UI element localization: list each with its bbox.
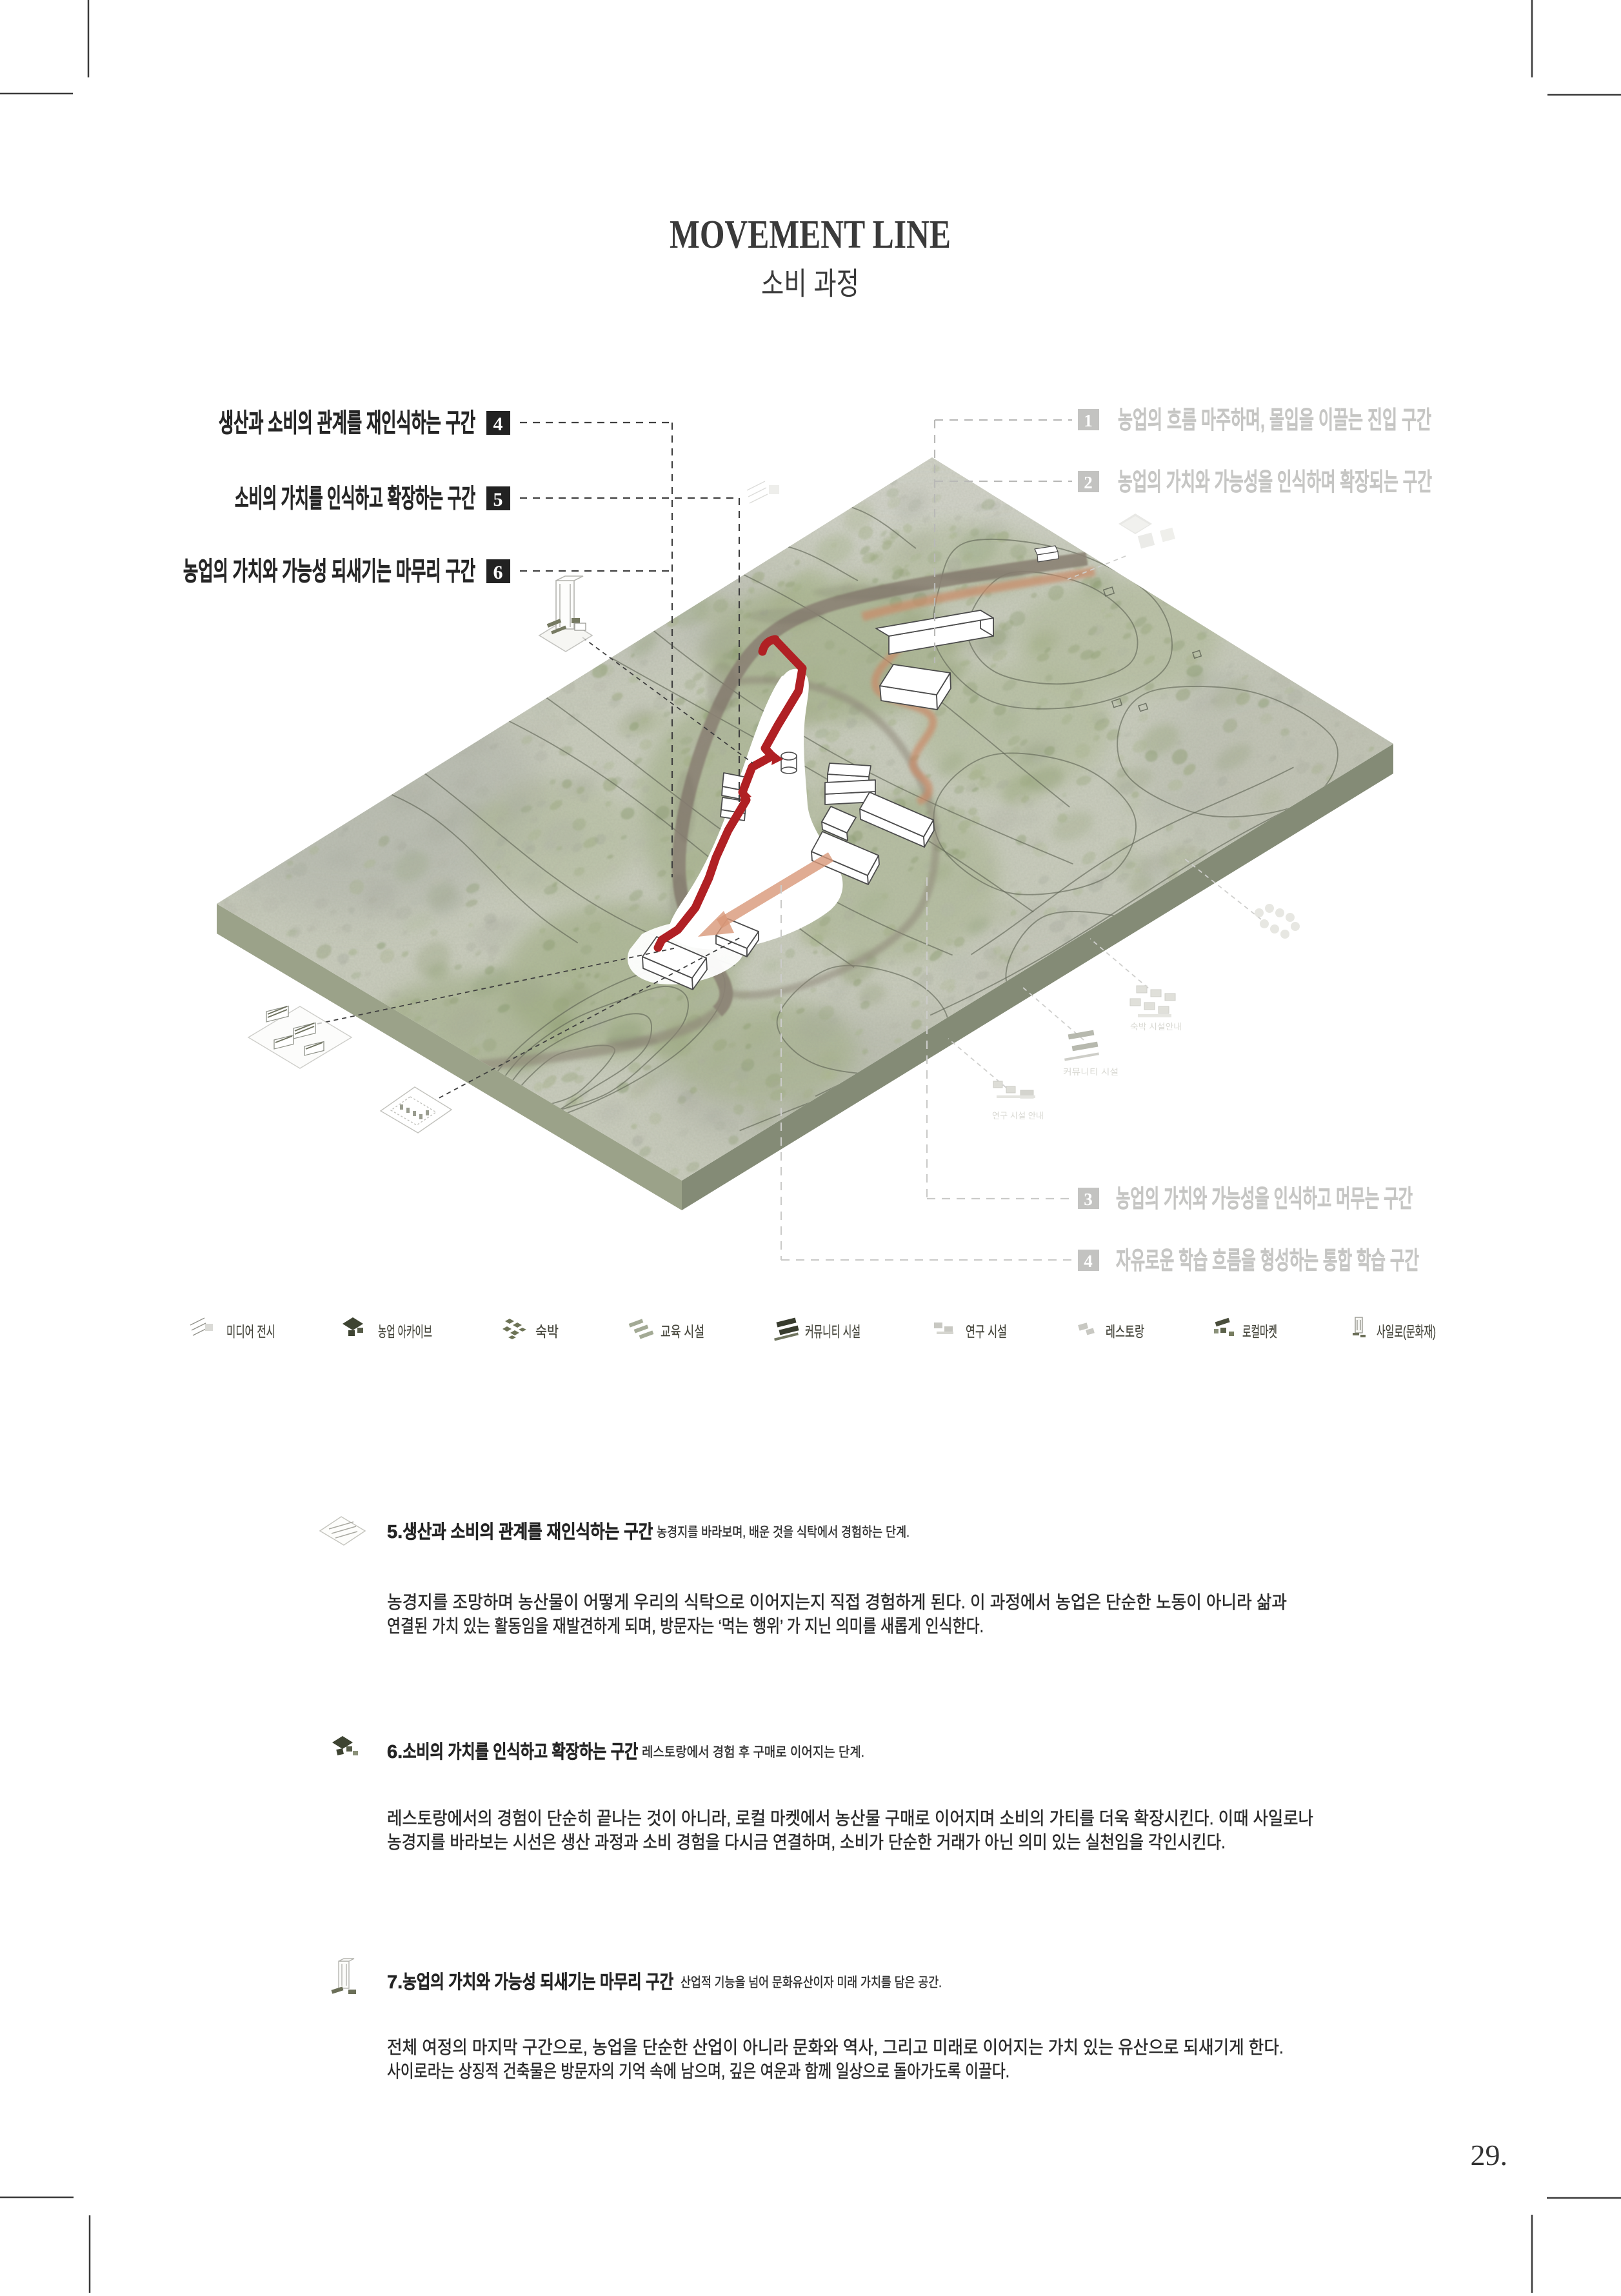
svg-text:소비 과정: 소비 과정 (761, 267, 859, 301)
svg-text:사이로라는 상징적 건축물은 방문자의 기억 속에 남으며,: 사이로라는 상징적 건축물은 방문자의 기억 속에 남으며, 깊은 여운과 함께… (387, 2061, 1009, 2081)
svg-text:숙박: 숙박 (535, 1323, 559, 1340)
svg-text:사일로(문화재): 사일로(문화재) (1377, 1323, 1436, 1340)
svg-text:5: 5 (493, 489, 503, 510)
svg-text:커뮤니티 시설: 커뮤니티 시설 (1063, 1067, 1119, 1077)
svg-text:4: 4 (1084, 1252, 1093, 1271)
svg-text:연구 시설: 연구 시설 (966, 1323, 1007, 1340)
svg-text:레스토랑에서 경험 후 구매로 이어지는 단계.: 레스토랑에서 경험 후 구매로 이어지는 단계. (642, 1745, 864, 1760)
svg-text:MOVEMENT LINE: MOVEMENT LINE (670, 213, 951, 257)
svg-text:농업의 흐름 마주하며, 몰입을 이끌는 진입 구간: 농업의 흐름 마주하며, 몰입을 이끌는 진입 구간 (1118, 407, 1431, 434)
svg-text:레스토랑: 레스토랑 (1106, 1323, 1144, 1340)
svg-text:전체 여정의 마지막 구간으로, 농업을 단순한 산업이 아: 전체 여정의 마지막 구간으로, 농업을 단순한 산업이 아니라 문화와 역사,… (387, 2037, 1284, 2057)
svg-text:7.농업의 가치와 가능성 되새기는 마무리 구간: 7.농업의 가치와 가능성 되새기는 마무리 구간 (387, 1972, 673, 1993)
svg-text:농업 아카이브: 농업 아카이브 (378, 1323, 432, 1340)
svg-text:1: 1 (1084, 411, 1093, 430)
svg-text:4: 4 (493, 414, 503, 435)
svg-text:교육 시설: 교육 시설 (661, 1323, 704, 1340)
svg-text:농업의 가치와 가능성 되새기는 마무리 구간: 농업의 가치와 가능성 되새기는 마무리 구간 (183, 557, 475, 586)
svg-text:레스토랑에서의 경험이 단순히 끝나는 것이 아니라, 로컬: 레스토랑에서의 경험이 단순히 끝나는 것이 아니라, 로컬 마켓에서 농산물 … (387, 1808, 1313, 1828)
svg-text:농경지를 바라보며, 배운 것을 식탁에서 경험하는 단계.: 농경지를 바라보며, 배운 것을 식탁에서 경험하는 단계. (657, 1525, 910, 1540)
svg-text:연결된 가치 있는 활동임을 재발견하게 되며, 방문자는: 연결된 가치 있는 활동임을 재발견하게 되며, 방문자는 ‘먹는 행위’ 가 … (387, 1616, 984, 1636)
svg-text:5.생산과 소비의 관계를 재인식하는 구간: 5.생산과 소비의 관계를 재인식하는 구간 (387, 1521, 653, 1542)
svg-text:자유로운 학습 흐름을 형성하는 통합 학습 구간: 자유로운 학습 흐름을 형성하는 통합 학습 구간 (1116, 1248, 1419, 1275)
svg-text:커뮤니티 시설: 커뮤니티 시설 (805, 1323, 860, 1340)
svg-text:연구 시설 안내: 연구 시설 안내 (992, 1111, 1044, 1121)
svg-text:2: 2 (1084, 473, 1093, 492)
svg-text:농경지를 바라보는 시선은 생산 과정과 소비 경험을 다시: 농경지를 바라보는 시선은 생산 과정과 소비 경험을 다시금 연결하며, 소비… (387, 1832, 1226, 1852)
svg-text:29.: 29. (1471, 2139, 1508, 2171)
svg-text:3: 3 (1084, 1190, 1093, 1209)
svg-text:산업적 기능을 넘어 문화유산이자 미래 가치를 담은 공간: 산업적 기능을 넘어 문화유산이자 미래 가치를 담은 공간. (681, 1975, 942, 1990)
svg-text:6: 6 (493, 562, 503, 583)
svg-text:소비의 가치를 인식하고 확장하는 구간: 소비의 가치를 인식하고 확장하는 구간 (235, 484, 475, 513)
svg-text:숙박 시설안내: 숙박 시설안내 (1130, 1022, 1182, 1032)
svg-text:로컬마켓: 로컬마켓 (1242, 1323, 1277, 1340)
svg-text:생산과 소비의 관계를 재인식하는 구간: 생산과 소비의 관계를 재인식하는 구간 (219, 409, 475, 437)
svg-text:농업의 가치와 가능성을 인식하며 확장되는 구간: 농업의 가치와 가능성을 인식하며 확장되는 구간 (1118, 469, 1432, 496)
svg-text:미디어 전시: 미디어 전시 (226, 1323, 275, 1340)
svg-text:농업의 가치와 가능성을 인식하고 머무는 구간: 농업의 가치와 가능성을 인식하고 머무는 구간 (1116, 1186, 1413, 1213)
svg-text:6.소비의 가치를 인식하고 확장하는 구간: 6.소비의 가치를 인식하고 확장하는 구간 (387, 1741, 638, 1762)
svg-text:농경지를 조망하며 농산물이 어떻게 우리의 식탁으로 이어: 농경지를 조망하며 농산물이 어떻게 우리의 식탁으로 이어지는지 직접 경험하… (387, 1592, 1287, 1612)
